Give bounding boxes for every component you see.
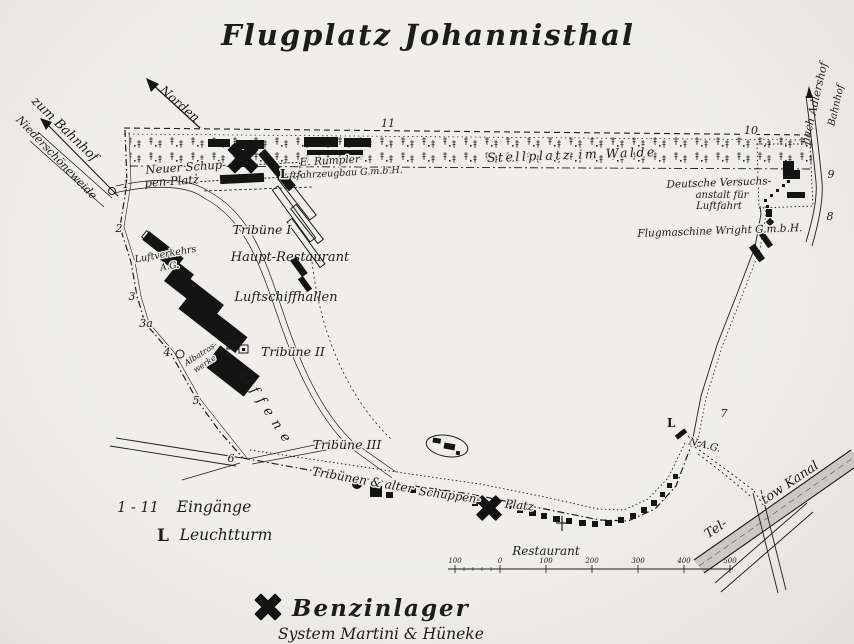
entrance-6: 6 bbox=[228, 452, 235, 465]
tribuenen-alter-label: Tribünen & alter bbox=[311, 464, 416, 496]
se-corner: L N.A.G. bbox=[667, 416, 769, 514]
tribuene-1-structures: Tribüne I bbox=[233, 186, 325, 292]
to-station-ne-line2: Bahnhof bbox=[826, 81, 847, 128]
scale-tick: 0 bbox=[498, 557, 503, 565]
tribuene-3-label: Tribüne III bbox=[313, 437, 383, 452]
nag-label: N.A.G. bbox=[687, 436, 722, 455]
lighthouse-nw-mark: L bbox=[280, 167, 289, 181]
scale-tick: 100 bbox=[448, 557, 462, 565]
entrance-3a: 3a bbox=[139, 317, 153, 330]
platz-label: Platz bbox=[503, 496, 535, 513]
legend-lighthouse-symbol: L bbox=[157, 526, 169, 546]
offene-label: Offene bbox=[237, 369, 298, 451]
entrance-10: 10 bbox=[744, 124, 758, 137]
entrance-4: 4 bbox=[163, 346, 171, 359]
schuppen-label: Schuppen- bbox=[418, 484, 481, 507]
north-boundary-woods: Stellplatz im Walde bbox=[124, 128, 812, 169]
legend-entrances: 1 - 11 Eingänge L Leuchtturm bbox=[117, 498, 272, 546]
legend-entrance-label: Eingänge bbox=[176, 498, 252, 516]
restaurant-label: Restaurant bbox=[511, 544, 580, 558]
entrance-9: 9 bbox=[828, 168, 835, 181]
lighthouse-se-mark: L bbox=[667, 416, 676, 430]
legend-benzinlager: Benzinlager System Martini & Hüneke bbox=[254, 593, 484, 643]
scale-tick: 300 bbox=[631, 557, 645, 565]
scale-tick: 500 bbox=[723, 557, 737, 565]
scale-tick: 200 bbox=[584, 557, 599, 565]
legend-benzinlager-label: Benzinlager bbox=[291, 595, 470, 622]
south-boundary-strip: Tribünen & alter Schuppen- Platz Restaur… bbox=[243, 441, 692, 558]
entrance-11: 11 bbox=[381, 117, 395, 130]
entrance-8: 8 bbox=[827, 210, 834, 223]
teltow-canal: Tel- tow Kanal bbox=[694, 450, 854, 593]
rumpler-label-2: Luftfahrzeugbau G.m.b.H. bbox=[276, 165, 403, 183]
dvl-label-2: anstalt für bbox=[696, 190, 750, 201]
scale-tick: 400 bbox=[676, 557, 691, 565]
entrance-7: 7 bbox=[721, 407, 728, 420]
to-station-ne-line1: nach Adlershof bbox=[799, 59, 831, 146]
entrance-5: 5 bbox=[193, 394, 200, 407]
map-page: Flugplatz Johannisthal Norden zum Bahnho… bbox=[0, 0, 854, 644]
luftschiffhallen-label: Luftschiffhallen bbox=[233, 290, 337, 305]
rumpler-label-1: E. Rumpler bbox=[298, 153, 361, 168]
legend-entrance-range: 1 - 11 bbox=[117, 500, 159, 516]
wright-label: Flugmaschine Wright G.m.b.H. bbox=[636, 222, 802, 240]
north-arrow: Norden bbox=[146, 78, 203, 128]
road-niederschoeneweide: zum Bahnhof Niederschöneweide bbox=[13, 93, 118, 207]
dvl-label-1: Deutsche Versuchs- bbox=[665, 175, 772, 191]
map-canvas: Flugplatz Johannisthal Norden zum Bahnho… bbox=[0, 0, 854, 644]
wright-works: Flugmaschine Wright G.m.b.H. bbox=[636, 222, 802, 262]
entrance-3: 3 bbox=[129, 290, 136, 303]
north-label: Norden bbox=[156, 82, 203, 125]
benzinlager-icon bbox=[254, 593, 281, 620]
entrance-1: 1 bbox=[123, 178, 130, 191]
haupt-restaurant-label: Haupt-Restaurant bbox=[230, 250, 350, 265]
tribuene-2-label: Tribüne II bbox=[261, 344, 326, 359]
dvl-label-3: Luftfahrt bbox=[695, 201, 743, 212]
legend-lighthouse-label: Leuchtturm bbox=[179, 526, 273, 544]
legend-benzinlager-system: System Martini & Hüneke bbox=[278, 625, 484, 643]
entrance-2: 2 bbox=[115, 222, 123, 235]
scale-bar: 100 0 100 200 300 400 500 bbox=[448, 557, 737, 573]
page-title: Flugplatz Johannisthal bbox=[220, 18, 635, 52]
scale-tick: 100 bbox=[539, 557, 553, 565]
tribuene-3-structures: Tribüne III bbox=[313, 432, 470, 460]
tribuene-1-label: Tribüne I bbox=[233, 222, 293, 237]
